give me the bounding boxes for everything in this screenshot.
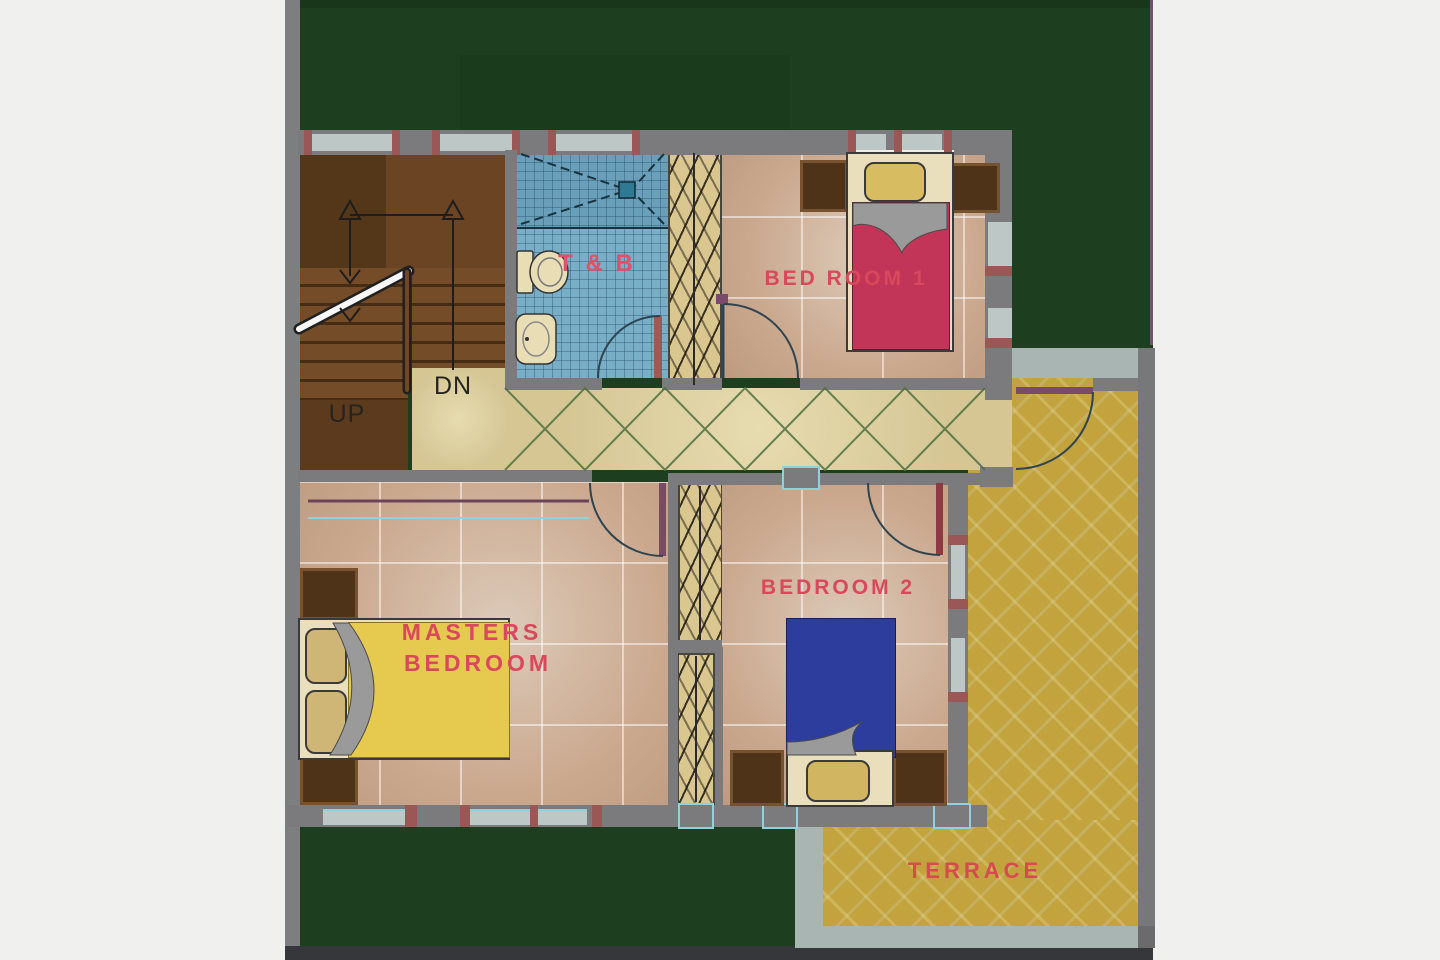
hallway-diamond-pattern xyxy=(505,388,985,470)
label-terrace: TERRACE xyxy=(908,858,1042,884)
terrace-door-swing-arc xyxy=(1016,392,1093,469)
bath-door-swing-arc xyxy=(598,316,660,378)
label-stairs-up: UP xyxy=(329,400,366,429)
bedroom1-door-swing-arc xyxy=(724,304,798,378)
label-bedroom2: BEDROOM 2 xyxy=(761,576,915,600)
label-toilet-bath: T & B xyxy=(558,250,636,278)
bedroom2-door-swing-arc xyxy=(868,483,940,555)
label-masters-line2: BEDROOM xyxy=(404,650,552,677)
bedroom2-blanket-fold xyxy=(787,721,863,755)
sink-fixture xyxy=(516,314,556,364)
stair-direction-arrows xyxy=(340,201,463,370)
label-masters-line1: MASTERS xyxy=(402,619,542,646)
label-stairs-down: DN xyxy=(434,372,472,401)
shower-drain xyxy=(619,182,635,198)
label-bedroom1: BED ROOM 1 xyxy=(764,267,927,291)
plan-linework xyxy=(0,0,1440,960)
masters-blanket-fold xyxy=(330,623,374,755)
masters-door-swing-arc xyxy=(590,483,663,556)
shower-drain-lines xyxy=(521,154,664,224)
bedroom1-blanket-fold xyxy=(853,203,947,253)
stair-rail xyxy=(299,271,409,329)
